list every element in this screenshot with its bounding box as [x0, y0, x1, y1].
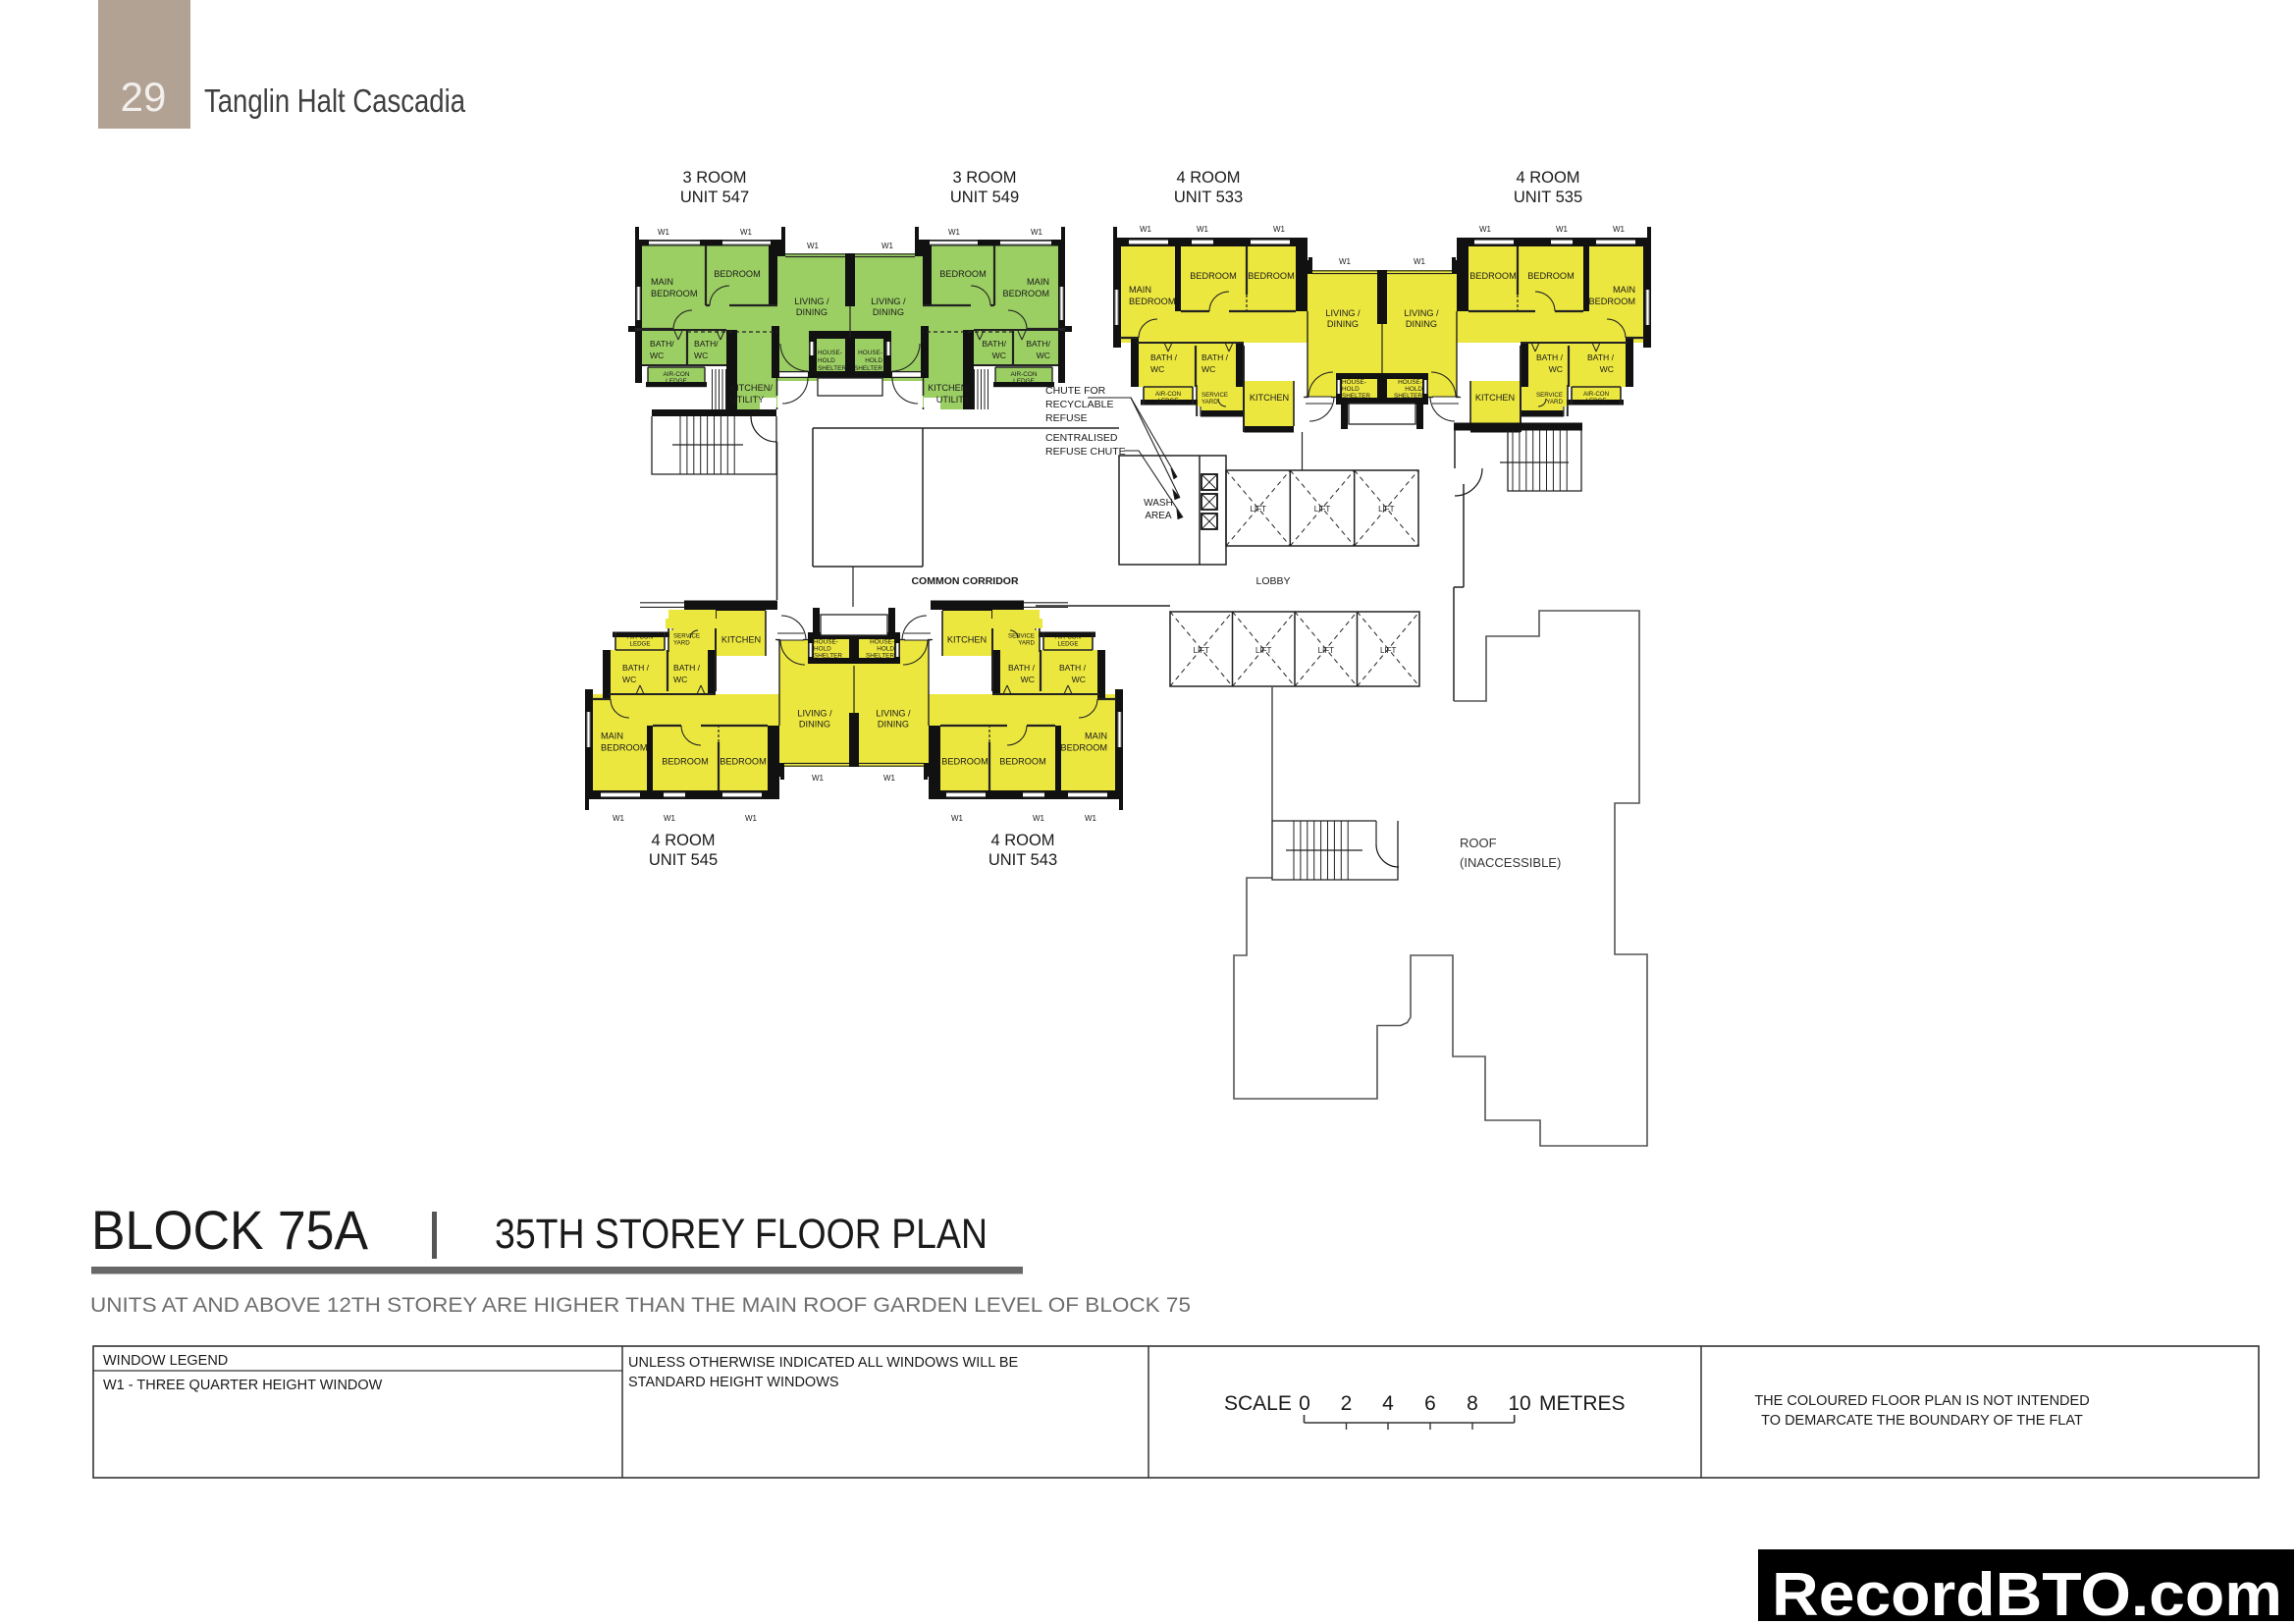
svg-text:WC: WC	[1037, 351, 1050, 360]
svg-text:BATH /: BATH /	[673, 663, 701, 673]
svg-text:0: 0	[1299, 1392, 1310, 1415]
svg-text:WASH: WASH	[1144, 498, 1173, 509]
svg-text:KITCHEN/: KITCHEN/	[928, 383, 970, 393]
svg-text:BATH /: BATH /	[1201, 352, 1229, 362]
svg-text:YARD: YARD	[673, 640, 690, 647]
svg-text:BEDROOM: BEDROOM	[1003, 289, 1049, 298]
svg-text:BATH/: BATH/	[982, 339, 1006, 349]
svg-text:HOUSE-: HOUSE-	[870, 639, 894, 646]
svg-text:BEDROOM: BEDROOM	[939, 269, 986, 279]
svg-text:4: 4	[1382, 1392, 1394, 1415]
svg-text:W1: W1	[1085, 814, 1097, 823]
svg-text:WC: WC	[992, 351, 1006, 360]
svg-text:LEDGE: LEDGE	[666, 378, 687, 385]
svg-text:HOLD: HOLD	[865, 357, 882, 364]
svg-text:UNIT 535: UNIT 535	[1514, 189, 1582, 206]
svg-text:MAIN: MAIN	[1085, 731, 1107, 741]
svg-text:W1: W1	[1339, 257, 1352, 266]
svg-text:BEDROOM: BEDROOM	[1061, 743, 1107, 753]
svg-text:WC: WC	[1600, 364, 1614, 374]
svg-text:W1: W1	[1613, 225, 1626, 234]
svg-text:LIFT: LIFT	[1314, 505, 1331, 514]
svg-text:HOUSE-: HOUSE-	[858, 350, 882, 356]
svg-text:MAIN: MAIN	[1613, 285, 1635, 295]
svg-text:MAIN: MAIN	[1129, 285, 1151, 295]
svg-text:W1: W1	[1031, 228, 1043, 237]
svg-text:W1: W1	[740, 228, 753, 237]
svg-text:W1: W1	[812, 774, 825, 783]
svg-text:SERVICE: SERVICE	[1536, 392, 1563, 399]
svg-text:WC: WC	[1201, 364, 1215, 374]
svg-text:LIFT: LIFT	[1378, 505, 1395, 514]
svg-text:SCALE: SCALE	[1224, 1392, 1292, 1415]
svg-text:CENTRALISED: CENTRALISED	[1045, 432, 1118, 444]
svg-text:KITCHEN: KITCHEN	[947, 635, 987, 645]
svg-text:DINING: DINING	[878, 720, 909, 730]
svg-text:SHELTER: SHELTER	[814, 653, 842, 660]
svg-text:LIVING /: LIVING /	[797, 709, 832, 719]
svg-text:W1: W1	[807, 242, 820, 250]
svg-text:BEDROOM: BEDROOM	[662, 757, 708, 767]
svg-text:3 ROOM: 3 ROOM	[682, 169, 746, 187]
svg-text:AIR-CON: AIR-CON	[1583, 391, 1609, 398]
svg-text:BATH/: BATH/	[694, 339, 719, 349]
svg-text:UNITS AT AND ABOVE 12TH STOREY: UNITS AT AND ABOVE 12TH STOREY ARE HIGHE…	[90, 1293, 1191, 1317]
svg-text:WC: WC	[622, 675, 636, 684]
svg-text:WINDOW LEGEND: WINDOW LEGEND	[103, 1353, 228, 1369]
svg-text:W1: W1	[881, 242, 894, 250]
svg-text:AIR-CON: AIR-CON	[1055, 634, 1081, 641]
svg-text:UNLESS OTHERWISE INDICATED ALL: UNLESS OTHERWISE INDICATED ALL WINDOWS W…	[628, 1355, 1019, 1371]
svg-text:HOUSE-: HOUSE-	[818, 350, 842, 356]
svg-text:DINING: DINING	[799, 720, 830, 730]
svg-text:BEDROOM: BEDROOM	[1589, 297, 1635, 306]
svg-text:METRES: METRES	[1539, 1392, 1626, 1415]
svg-text:DINING: DINING	[873, 307, 904, 317]
svg-text:BATH /: BATH /	[1536, 352, 1564, 362]
svg-text:4 ROOM: 4 ROOM	[990, 832, 1054, 849]
svg-text:W1: W1	[1479, 225, 1492, 234]
svg-text:SHELTER: SHELTER	[866, 653, 894, 660]
svg-text:UNIT 547: UNIT 547	[680, 189, 749, 206]
svg-text:WC: WC	[650, 351, 664, 360]
svg-text:SHELTER: SHELTER	[1394, 393, 1422, 400]
svg-text:W1: W1	[948, 228, 961, 237]
svg-text:W1: W1	[1140, 225, 1152, 234]
svg-text:BATH/: BATH/	[650, 339, 674, 349]
svg-text:CHUTE FOR: CHUTE FOR	[1045, 385, 1106, 397]
svg-text:SERVICE: SERVICE	[1201, 392, 1228, 399]
svg-text:LEDGE: LEDGE	[1158, 398, 1179, 405]
svg-text:BATH /: BATH /	[1587, 352, 1615, 362]
svg-text:LIVING /: LIVING /	[876, 709, 911, 719]
svg-text:AIR-CON: AIR-CON	[664, 371, 690, 378]
svg-text:STANDARD HEIGHT WINDOWS: STANDARD HEIGHT WINDOWS	[628, 1375, 839, 1390]
svg-text:KITCHEN: KITCHEN	[1250, 393, 1289, 403]
svg-text:Tanglin Halt Cascadia: Tanglin Halt Cascadia	[204, 82, 466, 119]
svg-text:LIFT: LIFT	[1194, 646, 1210, 655]
svg-text:LOBBY: LOBBY	[1255, 575, 1290, 587]
svg-text:W1: W1	[613, 814, 625, 823]
svg-text:SHELTER: SHELTER	[854, 365, 882, 372]
svg-text:RecordBTO.com: RecordBTO.com	[1772, 1561, 2282, 1624]
svg-text:MAIN: MAIN	[1027, 277, 1049, 287]
svg-text:WC: WC	[1549, 364, 1563, 374]
svg-text:LIFT: LIFT	[1250, 505, 1266, 514]
svg-text:BEDROOM: BEDROOM	[651, 289, 697, 298]
svg-text:REFUSE CHUTE: REFUSE CHUTE	[1045, 446, 1126, 458]
svg-text:UNIT 533: UNIT 533	[1174, 189, 1243, 206]
svg-text:BEDROOM: BEDROOM	[1129, 297, 1175, 306]
svg-text:W1: W1	[1273, 225, 1286, 234]
svg-text:2: 2	[1341, 1392, 1353, 1415]
svg-text:BEDROOM: BEDROOM	[714, 269, 760, 279]
svg-text:BATH /: BATH /	[1059, 663, 1087, 673]
svg-text:WC: WC	[1072, 675, 1086, 684]
svg-text:HOUSE-: HOUSE-	[1398, 379, 1422, 386]
svg-text:8: 8	[1467, 1392, 1478, 1415]
svg-text:LIFT: LIFT	[1380, 646, 1397, 655]
svg-text:LEDGE: LEDGE	[630, 641, 651, 648]
svg-text:UTILITY: UTILITY	[730, 395, 764, 405]
svg-text:DINING: DINING	[796, 307, 828, 317]
svg-text:COMMON CORRIDOR: COMMON CORRIDOR	[911, 575, 1018, 587]
svg-text:4 ROOM: 4 ROOM	[1516, 169, 1579, 187]
svg-text:WC: WC	[694, 351, 708, 360]
svg-text:BATH /: BATH /	[1150, 352, 1178, 362]
svg-text:KITCHEN/: KITCHEN/	[730, 383, 773, 393]
svg-text:WC: WC	[1021, 675, 1035, 684]
svg-text:KITCHEN: KITCHEN	[1475, 393, 1515, 403]
svg-text:(INACCESSIBLE): (INACCESSIBLE)	[1460, 855, 1561, 870]
svg-text:LEDGE: LEDGE	[1586, 398, 1607, 405]
svg-text:RECYCLABLE: RECYCLABLE	[1045, 399, 1113, 410]
svg-text:UNIT 549: UNIT 549	[950, 189, 1019, 206]
svg-text:HOLD: HOLD	[1405, 386, 1422, 393]
svg-text:YARD: YARD	[1201, 399, 1218, 406]
svg-text:3 ROOM: 3 ROOM	[952, 169, 1016, 187]
svg-text:W1 - THREE QUARTER HEIGHT WIND: W1 - THREE QUARTER HEIGHT WINDOW	[103, 1378, 383, 1393]
svg-text:BEDROOM: BEDROOM	[941, 757, 988, 767]
svg-text:WC: WC	[673, 675, 687, 684]
svg-text:DINING: DINING	[1406, 319, 1437, 329]
svg-text:LIFT: LIFT	[1318, 646, 1335, 655]
svg-text:UNIT 545: UNIT 545	[649, 851, 718, 869]
svg-text:HOUSE-: HOUSE-	[1342, 379, 1366, 386]
svg-text:SERVICE: SERVICE	[1008, 633, 1035, 640]
svg-text:AREA: AREA	[1145, 511, 1172, 521]
svg-text:4 ROOM: 4 ROOM	[651, 832, 715, 849]
svg-text:W1: W1	[745, 814, 758, 823]
svg-text:YARD: YARD	[1546, 399, 1563, 406]
svg-text:DINING: DINING	[1327, 319, 1359, 329]
svg-text:W1: W1	[1556, 225, 1569, 234]
svg-text:BATH /: BATH /	[1008, 663, 1036, 673]
svg-text:29: 29	[121, 74, 167, 120]
svg-text:HOLD: HOLD	[877, 646, 894, 653]
svg-text:BEDROOM: BEDROOM	[1527, 271, 1574, 281]
svg-text:SHELTER: SHELTER	[818, 365, 846, 372]
svg-text:4 ROOM: 4 ROOM	[1176, 169, 1240, 187]
svg-text:BEDROOM: BEDROOM	[999, 757, 1045, 767]
svg-text:35TH STOREY FLOOR PLAN: 35TH STOREY FLOOR PLAN	[495, 1211, 988, 1258]
svg-text:W1: W1	[951, 814, 964, 823]
svg-text:HOLD: HOLD	[1342, 386, 1360, 393]
svg-text:BEDROOM: BEDROOM	[1248, 271, 1294, 281]
svg-text:BEDROOM: BEDROOM	[601, 743, 647, 753]
svg-text:AIR-CON: AIR-CON	[627, 634, 653, 641]
svg-text:W1: W1	[658, 228, 670, 237]
svg-text:THE COLOURED FLOOR PLAN IS NOT: THE COLOURED FLOOR PLAN IS NOT INTENDED	[1754, 1393, 2089, 1409]
svg-text:BEDROOM: BEDROOM	[1190, 271, 1236, 281]
svg-text:LIVING /: LIVING /	[1325, 308, 1361, 318]
svg-text:LIVING /: LIVING /	[794, 297, 829, 306]
svg-text:LIFT: LIFT	[1255, 646, 1272, 655]
svg-text:W1: W1	[664, 814, 676, 823]
svg-text:BATH /: BATH /	[622, 663, 650, 673]
svg-text:HOLD: HOLD	[814, 646, 831, 653]
svg-text:SHELTER: SHELTER	[1342, 393, 1370, 400]
svg-text:LIVING /: LIVING /	[871, 297, 906, 306]
svg-text:LEDGE: LEDGE	[1058, 641, 1079, 648]
svg-text:LEDGE: LEDGE	[1013, 378, 1035, 385]
svg-text:W1: W1	[1197, 225, 1209, 234]
svg-text:ROOF: ROOF	[1460, 836, 1497, 850]
svg-text:MAIN: MAIN	[601, 731, 623, 741]
svg-text:HOLD: HOLD	[818, 357, 835, 364]
svg-text:10: 10	[1508, 1392, 1530, 1415]
svg-text:BEDROOM: BEDROOM	[1469, 271, 1516, 281]
svg-text:REFUSE: REFUSE	[1045, 412, 1088, 424]
svg-text:BEDROOM: BEDROOM	[720, 757, 766, 767]
svg-text:W1: W1	[1033, 814, 1045, 823]
svg-text:KITCHEN: KITCHEN	[721, 635, 761, 645]
svg-text:UNIT 543: UNIT 543	[988, 851, 1057, 869]
svg-text:W1: W1	[883, 774, 896, 783]
svg-text:WC: WC	[1150, 364, 1164, 374]
svg-text:LIVING /: LIVING /	[1404, 308, 1439, 318]
svg-text:HOUSE-: HOUSE-	[814, 639, 838, 646]
svg-text:AIR-CON: AIR-CON	[1155, 391, 1181, 398]
svg-text:W1: W1	[1414, 257, 1426, 266]
svg-text:TO DEMARCATE THE BOUNDARY OF T: TO DEMARCATE THE BOUNDARY OF THE FLAT	[1761, 1413, 2083, 1429]
svg-text:UTILITY: UTILITY	[936, 395, 970, 405]
svg-text:AIR-CON: AIR-CON	[1011, 371, 1038, 378]
svg-text:BATH/: BATH/	[1026, 339, 1050, 349]
svg-text:YARD: YARD	[1018, 640, 1035, 647]
svg-text:MAIN: MAIN	[651, 277, 673, 287]
svg-text:BLOCK 75A: BLOCK 75A	[91, 1199, 369, 1261]
svg-text:6: 6	[1424, 1392, 1436, 1415]
svg-text:SERVICE: SERVICE	[673, 633, 700, 640]
